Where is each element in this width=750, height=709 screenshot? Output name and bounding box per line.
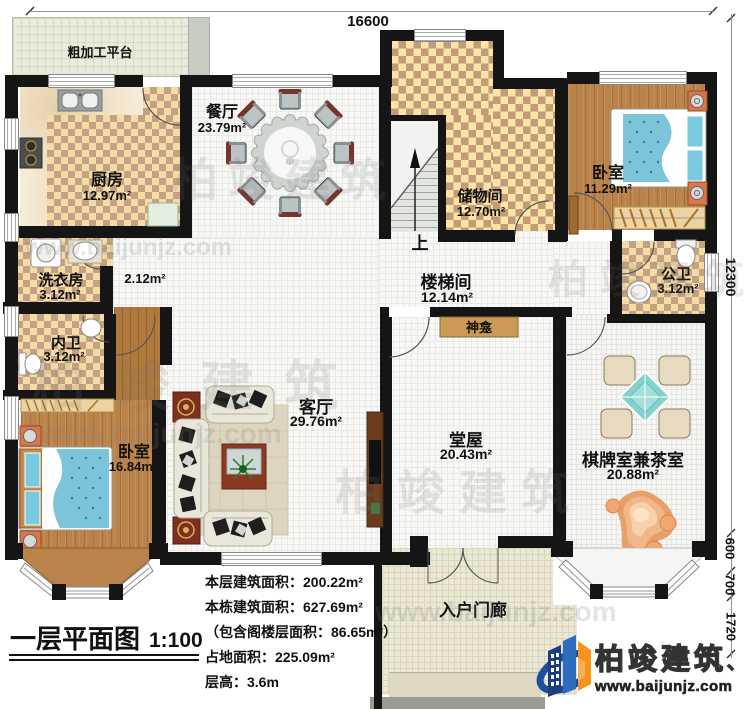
- svg-text:神龛: 神龛: [466, 320, 493, 335]
